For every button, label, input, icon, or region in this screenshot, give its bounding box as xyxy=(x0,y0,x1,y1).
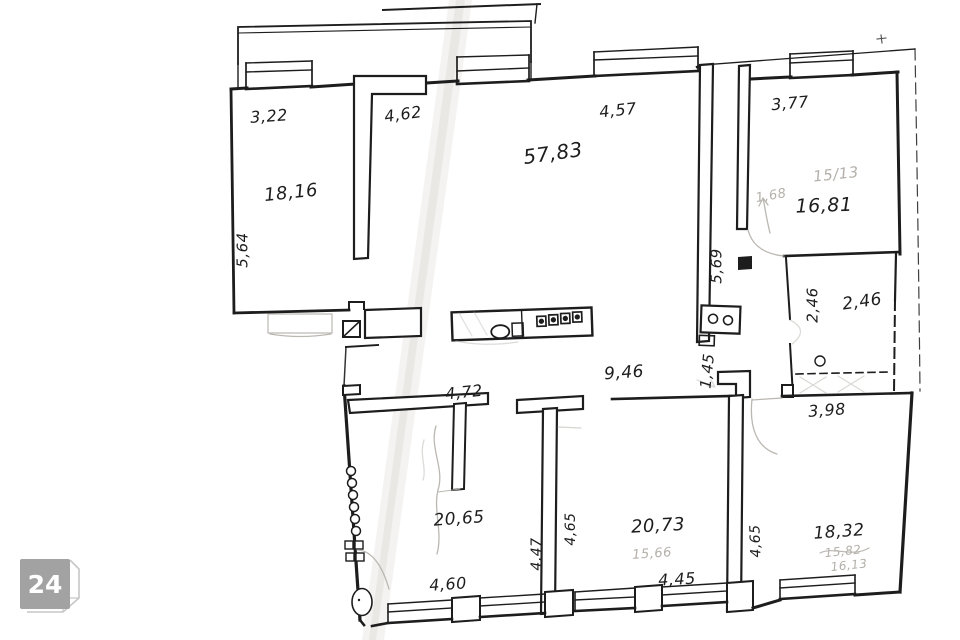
dim-9-46: 9,46 xyxy=(603,362,644,385)
wall-20-73-top xyxy=(612,396,731,399)
window xyxy=(246,61,312,89)
wall-right-outer-top xyxy=(897,72,900,254)
labels-pencil: 15/13 1,68 15,66 15,82 16,13 xyxy=(632,163,868,574)
door-arc xyxy=(751,398,782,454)
badge-number: 24 xyxy=(28,570,63,599)
window xyxy=(780,575,855,599)
room-area-20-65: 20,65 xyxy=(433,507,485,531)
pencil-note-16-13: 16,13 xyxy=(830,556,868,574)
watermark-badge: 24 xyxy=(20,559,79,612)
wall-divider-2065-2073 xyxy=(541,408,557,614)
window xyxy=(594,47,698,76)
dim-3-22: 3,22 xyxy=(250,105,289,127)
dim-3-98: 3,98 xyxy=(808,399,847,421)
room-area-57-83: 57,83 xyxy=(522,137,585,169)
wall-left-outer xyxy=(231,89,234,313)
wall-divider-2073-1832 xyxy=(727,395,743,611)
dim-4-72: 4,72 xyxy=(444,381,483,404)
dim-1-45: 1,45 xyxy=(696,352,718,389)
pencil-note-1-68: 1,68 xyxy=(755,186,788,206)
wall-hall-corner-1-45 xyxy=(718,371,750,398)
dim-5-69: 5,69 xyxy=(707,248,725,283)
dim-4-60: 4,60 xyxy=(429,573,468,595)
door-arc xyxy=(790,320,801,344)
window xyxy=(480,594,545,617)
electrical-panel xyxy=(343,321,360,337)
floor-plan-scan: 3,22 4,62 4,57 57,83 3,77 18,16 16,81 5,… xyxy=(0,0,960,640)
dim-4-47: 4,47 xyxy=(529,537,545,570)
window xyxy=(457,55,529,84)
dim-2-46: 2,46 xyxy=(803,287,821,322)
riser-circles xyxy=(345,467,364,562)
dashed-partition xyxy=(796,372,890,374)
small-circle-fixture xyxy=(815,356,825,366)
right-outer-line xyxy=(915,49,920,391)
wall-right-outer-bottom xyxy=(900,393,912,592)
kitchen-counter xyxy=(452,307,593,340)
dim-4-65-left: 4,65 xyxy=(563,512,579,545)
wall-end-cap xyxy=(738,256,752,270)
window xyxy=(575,588,635,611)
door-arc xyxy=(748,230,784,256)
floor-plan-svg: 3,22 4,62 4,57 57,83 3,77 18,16 16,81 5,… xyxy=(0,0,960,640)
plus-mark xyxy=(877,35,886,43)
labels-ink: 3,22 4,62 4,57 57,83 3,77 18,16 16,81 5,… xyxy=(233,92,883,595)
dim-5-64: 5,64 xyxy=(233,232,251,267)
wall-block-doorway xyxy=(365,308,421,338)
dim-4-45: 4,45 xyxy=(658,569,697,590)
pencil-x-mark xyxy=(838,376,864,392)
pencil-note-15-66: 15,66 xyxy=(632,545,673,563)
pencil-squiggle xyxy=(434,426,440,554)
window xyxy=(388,600,452,623)
room-area-18-16: 18,16 xyxy=(263,180,319,207)
room-area-16-81: 16,81 xyxy=(795,194,853,218)
sofa-pencil xyxy=(268,314,332,337)
room-area-2-46: 2,46 xyxy=(841,289,883,314)
wall-18-32-top xyxy=(782,393,912,396)
room-area-20-73: 20,73 xyxy=(631,514,686,538)
room-area-18-32: 18,32 xyxy=(813,520,865,544)
wall-20-65-partition xyxy=(452,403,466,490)
dim-4-57: 4,57 xyxy=(598,99,638,122)
wall-16-81-left xyxy=(737,65,750,229)
dim-3-77: 3,77 xyxy=(770,92,809,114)
dim-4-65-right: 4,65 xyxy=(747,524,764,558)
dim-4-62: 4,62 xyxy=(383,102,423,126)
pencil-x-mark xyxy=(800,377,826,393)
wall-5-69 xyxy=(697,64,713,342)
toilet-fixture xyxy=(352,589,372,616)
pencil-note-15-13: 15/13 xyxy=(812,163,859,186)
window xyxy=(790,51,853,78)
